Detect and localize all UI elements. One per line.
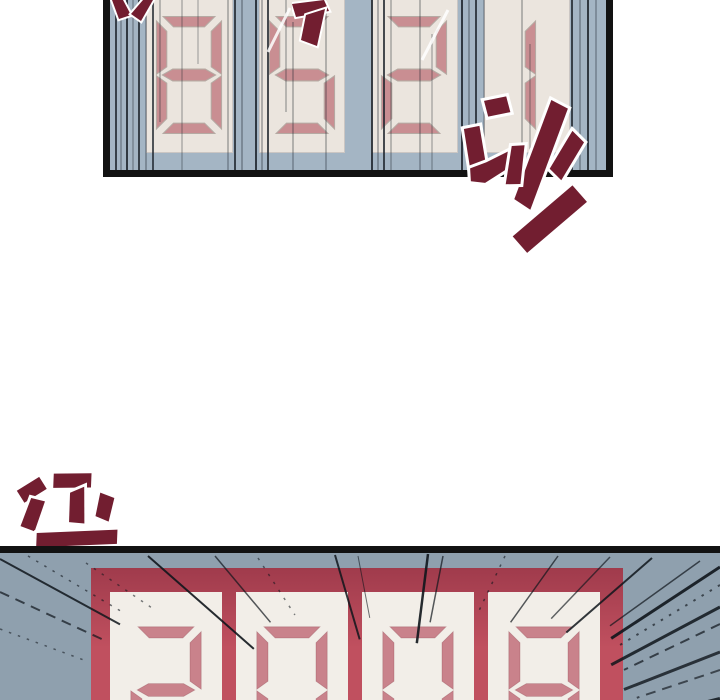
- comic-page: [0, 0, 720, 700]
- digit-card: [146, 0, 233, 153]
- sfx-fragment-icon: [110, 0, 158, 26]
- digit-card: [110, 592, 222, 700]
- seven-segment-digit-0: [378, 622, 458, 700]
- seven-segment-digit-2: [377, 12, 451, 138]
- seven-segment-digit-8: [504, 622, 584, 700]
- digit-card: [488, 592, 600, 700]
- seven-segment-digit-8: [152, 12, 226, 138]
- seven-segment-digit-2: [126, 622, 206, 700]
- panel-bottom-counter: [0, 546, 720, 700]
- digit-card: [236, 592, 348, 700]
- digit-card: [362, 592, 474, 700]
- red-bezel: [91, 568, 623, 700]
- sfx-fragment-icon: [292, 0, 340, 52]
- sfx-sha: [450, 94, 602, 256]
- seven-segment-digit-0: [252, 622, 332, 700]
- digit-card: [371, 0, 458, 153]
